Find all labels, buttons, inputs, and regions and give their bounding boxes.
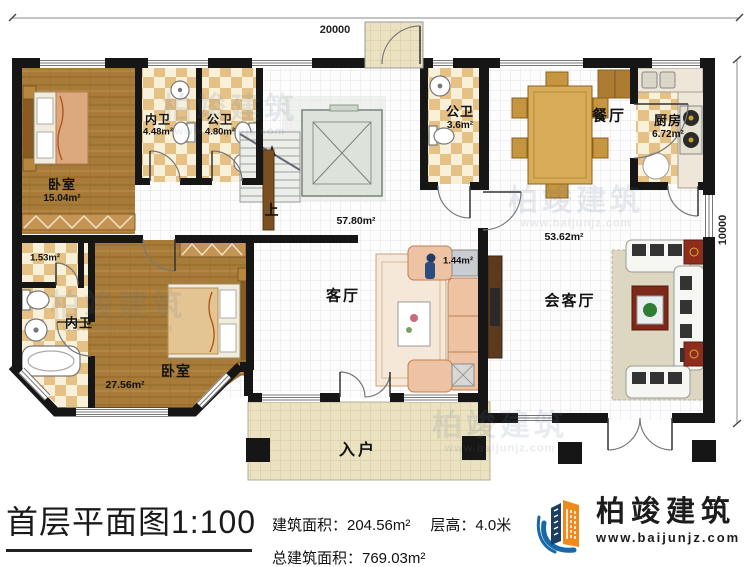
floorplan-drawing [0,0,750,487]
top-entry-vestibule [365,22,423,68]
company-logo: 柏竣建筑 www.baijunjz.com [536,495,740,555]
building-area-text: 建筑面积：204.56m² [272,517,410,534]
company-name: 柏竣建筑 [596,495,740,529]
reception-furniture [612,240,704,400]
plan-title: 首层平面图1:100 [6,497,256,543]
company-url: www.baijunjz.com [596,530,740,545]
title-bar: 首层平面图1:100 建筑面积：204.56m²层高：4.0米 总建筑面积：76… [0,487,750,567]
hall-cabinet [263,150,274,230]
company-logo-text: 柏竣建筑 www.baijunjz.com [596,495,740,545]
plan-title-block: 首层平面图1:100 [6,497,256,552]
company-logo-icon [536,495,592,555]
floor-height-text: 层高：4.0米 [430,517,511,534]
title-underline [6,549,252,552]
bed-bedroom1 [23,86,88,171]
floorplan-page: 柏竣建筑www.baijunjz.com 柏竣建筑www.baijunjz.co… [0,0,750,567]
total-area-text: 总建筑面积：769.03m² [272,550,425,567]
wardrobe-bedroom1 [22,214,135,230]
elevator [302,105,382,196]
plan-stats: 建筑面积：204.56m²层高：4.0米 总建筑面积：769.03m² [272,514,531,567]
